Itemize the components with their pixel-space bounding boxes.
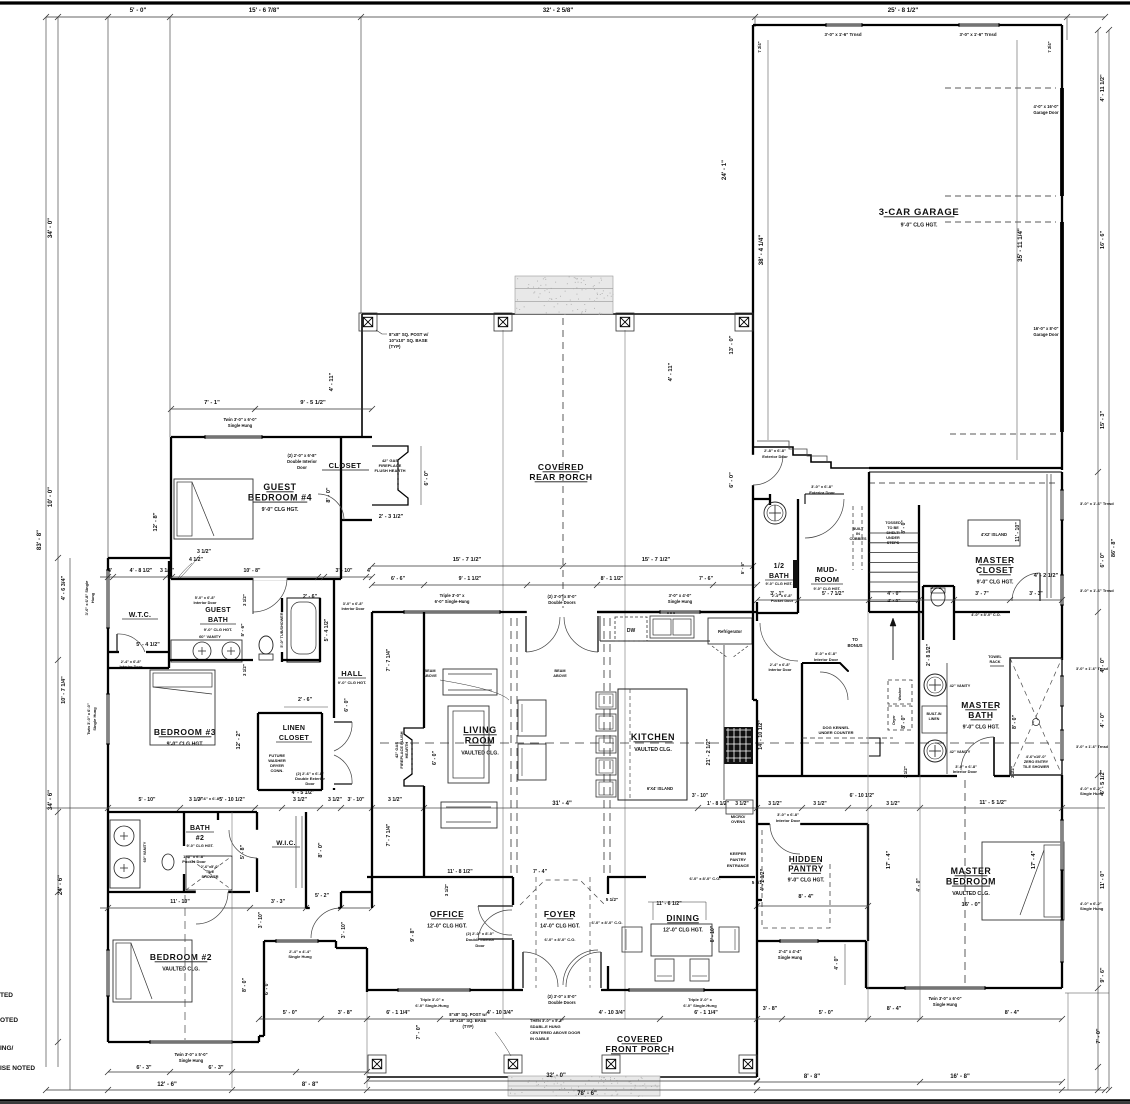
- svg-text:15' - 7 1/2": 15' - 7 1/2": [453, 557, 482, 563]
- svg-text:3' - 1": 3' - 1": [770, 591, 784, 597]
- svg-text:TED: TED: [0, 992, 13, 999]
- svg-text:Dryer: Dryer: [892, 715, 896, 725]
- svg-text:BATH: BATH: [190, 825, 210, 832]
- svg-text:83' - 8": 83' - 8": [36, 530, 43, 550]
- svg-text:KEEPER: KEEPER: [730, 851, 747, 856]
- svg-text:Single Hung: Single Hung: [1080, 906, 1104, 911]
- svg-text:4' - 11 1/2": 4' - 11 1/2": [1100, 74, 1106, 102]
- svg-text:11' - 8 1/2": 11' - 8 1/2": [447, 869, 473, 875]
- svg-text:Pocket Door: Pocket Door: [771, 599, 794, 603]
- svg-text:CUBBIES: CUBBIES: [849, 537, 867, 541]
- svg-text:8' - 0": 8' - 0": [901, 520, 907, 534]
- svg-text:2' - 3 1/2": 2' - 3 1/2": [379, 514, 404, 520]
- svg-text:6'-0" x 8'-0" C.O.: 6'-0" x 8'-0" C.O.: [689, 876, 720, 881]
- svg-text:14'-0" CLG HGT.: 14'-0" CLG HGT.: [540, 924, 580, 930]
- svg-text:(TYP): (TYP): [389, 344, 401, 349]
- svg-text:11' - 0": 11' - 0": [1100, 871, 1106, 889]
- svg-text:(2) 2'-0" x 6'-8": (2) 2'-0" x 6'-8": [287, 453, 316, 458]
- svg-text:8' - 8": 8' - 8": [302, 1082, 318, 1088]
- svg-text:2' - 8 1/2": 2' - 8 1/2": [926, 643, 932, 666]
- svg-text:MASTER: MASTER: [975, 555, 1015, 565]
- svg-text:KITCHEN: KITCHEN: [631, 732, 675, 742]
- svg-text:9'-0" CLG HGT.: 9'-0" CLG HGT.: [204, 627, 232, 632]
- svg-text:32' - 2 5/8": 32' - 2 5/8": [543, 7, 574, 14]
- svg-text:ROOM: ROOM: [465, 736, 495, 746]
- svg-text:3 1/2": 3 1/2": [903, 766, 908, 778]
- svg-text:Interior Door: Interior Door: [194, 601, 218, 605]
- svg-text:16' - 0": 16' - 0": [962, 902, 981, 908]
- svg-text:4' - 11": 4' - 11": [668, 362, 674, 381]
- svg-text:32' - 0": 32' - 0": [546, 1073, 566, 1079]
- svg-text:Triple 3'-0" x: Triple 3'-0" x: [440, 593, 466, 598]
- svg-text:PANTRY: PANTRY: [730, 857, 746, 862]
- svg-text:4' - 5 1/2": 4' - 5 1/2": [292, 790, 315, 796]
- svg-text:8' - 0": 8' - 0": [901, 715, 907, 729]
- svg-text:7' - 7 1/4": 7' - 7 1/4": [386, 823, 392, 846]
- svg-text:7' - 7 1/4": 7' - 7 1/4": [386, 648, 392, 671]
- svg-text:9'-0" CLG HGT.: 9'-0" CLG HGT.: [187, 844, 214, 848]
- svg-text:5' - 10": 5' - 10": [139, 797, 156, 803]
- svg-text:11' - 10": 11' - 10": [170, 899, 190, 905]
- svg-text:2'-6"x5'-0": 2'-6"x5'-0": [201, 865, 220, 869]
- svg-text:LINEN: LINEN: [929, 717, 940, 721]
- svg-text:14' - 10 1/2": 14' - 10 1/2": [758, 720, 764, 750]
- svg-text:Exterior Door: Exterior Door: [809, 490, 835, 495]
- svg-text:24' - 1": 24' - 1": [721, 160, 728, 180]
- svg-text:4'-0" x 16'-0": 4'-0" x 16'-0": [1033, 104, 1058, 109]
- svg-text:4'X2' ISLAND: 4'X2' ISLAND: [981, 532, 1007, 537]
- svg-text:1' - 8 1/2": 1' - 8 1/2": [707, 801, 730, 807]
- svg-text:6' - 0": 6' - 0": [1100, 552, 1106, 568]
- svg-text:IN GABLE: IN GABLE: [530, 1036, 549, 1041]
- svg-text:3 1/2": 3 1/2": [886, 801, 900, 807]
- svg-text:3'-0" x 1'-6" Trnsd: 3'-0" x 1'-6" Trnsd: [825, 32, 862, 37]
- svg-text:Single Hung: Single Hung: [778, 955, 803, 960]
- svg-text:VAULTED CLG.: VAULTED CLG.: [952, 891, 990, 897]
- svg-text:5'-0" TUB/SHOWER: 5'-0" TUB/SHOWER: [280, 612, 284, 647]
- svg-text:BEDROOM: BEDROOM: [946, 876, 996, 886]
- svg-text:3'-0" x 6'-8": 3'-0" x 6'-8": [815, 651, 837, 656]
- svg-text:5' - 4 1/2": 5' - 4 1/2": [324, 618, 330, 641]
- svg-text:7 3/4": 7 3/4": [1047, 41, 1052, 52]
- svg-text:10' - 7 1/4": 10' - 7 1/4": [61, 676, 67, 704]
- svg-text:GUEST: GUEST: [263, 482, 296, 492]
- svg-text:2'-4" x 6'-8": 2'-4" x 6'-8": [770, 663, 791, 667]
- svg-text:BATH: BATH: [769, 573, 789, 580]
- svg-text:9' - 1 1/2": 9' - 1 1/2": [459, 576, 482, 582]
- svg-text:TOWEL: TOWEL: [988, 655, 1002, 659]
- svg-text:8"x8" SQ. POST w/: 8"x8" SQ. POST w/: [449, 1012, 487, 1017]
- svg-text:9'-0" CLG HGT.: 9'-0" CLG HGT.: [338, 680, 366, 685]
- svg-text:5' - 7 1/2": 5' - 7 1/2": [822, 591, 845, 597]
- svg-text:78' - 6": 78' - 6": [577, 1091, 597, 1097]
- svg-text:10' - 8": 10' - 8": [244, 568, 261, 574]
- svg-text:7' - 0": 7' - 0": [1096, 1028, 1102, 1044]
- svg-text:8' - 0": 8' - 0": [1012, 714, 1018, 729]
- svg-text:9' - 8": 9' - 8": [410, 928, 416, 942]
- svg-text:3' - 8": 3' - 8": [763, 1006, 778, 1012]
- svg-text:60" VANITY: 60" VANITY: [143, 841, 147, 862]
- svg-text:IN: IN: [856, 532, 860, 536]
- svg-text:9'-0" CLG HGT.: 9'-0" CLG HGT.: [788, 878, 825, 884]
- svg-text:FLUSH HEARTH: FLUSH HEARTH: [374, 468, 405, 473]
- svg-text:12'-0" CLG HGT.: 12'-0" CLG HGT.: [427, 924, 467, 930]
- svg-text:(2) 3'-0" x 8'-0": (2) 3'-0" x 8'-0": [547, 594, 576, 599]
- svg-text:LINEN: LINEN: [283, 725, 306, 732]
- svg-text:8"x8" SQ. POST w/: 8"x8" SQ. POST w/: [389, 332, 429, 337]
- svg-text:6'-0" Single-Hung: 6'-0" Single-Hung: [683, 1003, 717, 1008]
- svg-text:17' - 4": 17' - 4": [886, 851, 892, 870]
- svg-text:OVENS: OVENS: [731, 819, 745, 824]
- svg-text:9'-0" CLG HGT.: 9'-0" CLG HGT.: [766, 582, 793, 586]
- svg-text:6' - 0": 6' - 0": [424, 470, 430, 486]
- svg-text:3'-0" x 1'-6" Trnsd: 3'-0" x 1'-6" Trnsd: [1076, 667, 1109, 671]
- svg-text:3'-0" x 6'-8": 3'-0" x 6'-8": [811, 484, 833, 489]
- svg-text:3' - 10": 3' - 10": [348, 797, 365, 803]
- svg-text:Garage Door: Garage Door: [1033, 332, 1059, 337]
- svg-text:6'-0" Single-Hung: 6'-0" Single-Hung: [415, 1003, 449, 1008]
- svg-text:Double Interior: Double Interior: [287, 459, 317, 464]
- svg-text:ISE NOTED: ISE NOTED: [0, 1065, 35, 1072]
- svg-text:SHELTI: SHELTI: [886, 531, 899, 535]
- svg-text:38' - 4 1/4": 38' - 4 1/4": [758, 235, 765, 266]
- svg-text:6' - 3": 6' - 3": [208, 1065, 224, 1071]
- svg-text:5' - 2": 5' - 2": [315, 893, 330, 899]
- svg-text:VAULTED CLG.: VAULTED CLG.: [634, 747, 672, 753]
- svg-text:3'-0" x 6'-8": 3'-0" x 6'-8": [777, 812, 799, 817]
- svg-text:3'-0" x 1'-6" Trnsd: 3'-0" x 1'-6" Trnsd: [1080, 501, 1114, 506]
- svg-text:9'-0" CLG HGT.: 9'-0" CLG HGT.: [262, 507, 299, 513]
- svg-text:VAULTED CLG.: VAULTED CLG.: [461, 751, 499, 757]
- svg-text:Washer: Washer: [898, 687, 902, 700]
- svg-text:SDABL-E HUNG: SDABL-E HUNG: [530, 1024, 561, 1029]
- svg-text:Hung: Hung: [90, 592, 95, 603]
- svg-text:3 1/2": 3 1/2": [735, 801, 749, 807]
- svg-text:BEAM: BEAM: [554, 669, 565, 673]
- svg-text:2' - 6": 2' - 6": [298, 697, 313, 703]
- svg-text:42" VANITY: 42" VANITY: [950, 684, 971, 688]
- svg-text:LIVING: LIVING: [463, 725, 497, 735]
- svg-text:9'-0" CLG HGT.: 9'-0" CLG HGT.: [167, 742, 204, 748]
- svg-text:12'-0" CLG HGT.: 12'-0" CLG HGT.: [663, 928, 703, 934]
- svg-text:5' - 0": 5' - 0": [283, 1010, 298, 1016]
- svg-text:6'X4' ISLAND: 6'X4' ISLAND: [647, 786, 673, 791]
- svg-text:9' - 6": 9' - 6": [1100, 967, 1106, 983]
- svg-text:5' - 10 1/2": 5' - 10 1/2": [219, 797, 245, 803]
- svg-text:4' - 0": 4' - 0": [1100, 712, 1106, 728]
- svg-text:3 1/2": 3 1/2": [197, 549, 212, 555]
- svg-text:8' - 0": 8' - 0": [326, 487, 332, 503]
- svg-text:Refrigerator: Refrigerator: [718, 629, 742, 634]
- svg-text:7 3/4": 7 3/4": [757, 41, 762, 52]
- svg-text:5' - 4 1/2": 5' - 4 1/2": [136, 642, 160, 648]
- svg-text:5' - 0": 5' - 0": [819, 1010, 834, 1016]
- svg-text:11' - 5 1/2": 11' - 5 1/2": [979, 800, 1007, 806]
- svg-text:3'-0" x 6'-8": 3'-0" x 6'-8": [343, 602, 364, 606]
- svg-text:Twin 3'-0" x 6'-0": Twin 3'-0" x 6'-0": [223, 417, 256, 422]
- svg-text:ZERO ENTRY: ZERO ENTRY: [1024, 760, 1049, 764]
- svg-text:9'-0" CLG HGT.: 9'-0" CLG HGT.: [963, 725, 1000, 731]
- svg-text:Single Hung: Single Hung: [933, 1002, 958, 1007]
- svg-text:16'-0" x 8'-0": 16'-0" x 8'-0": [1033, 326, 1058, 331]
- svg-text:12' - 2": 12' - 2": [236, 730, 242, 749]
- svg-text:OFFICE: OFFICE: [430, 909, 465, 919]
- svg-text:Twin 3'-0" x 6'-0": Twin 3'-0" x 6'-0": [928, 996, 961, 1001]
- svg-text:4' - 2 1/2": 4' - 2 1/2": [1034, 573, 1059, 579]
- svg-text:REAR PORCH: REAR PORCH: [529, 472, 592, 482]
- svg-text:8' - 4": 8' - 4": [798, 894, 814, 900]
- svg-text:COVERED: COVERED: [617, 1034, 663, 1044]
- svg-text:1'-6" x 6'-8": 1'-6" x 6'-8": [199, 796, 221, 801]
- svg-text:3 1/2": 3 1/2": [444, 884, 449, 896]
- svg-text:6'-0" x 8'-0" C.O.: 6'-0" x 8'-0" C.O.: [544, 937, 575, 942]
- svg-text:8' - 4": 8' - 4": [887, 1006, 902, 1012]
- svg-text:SHOWER: SHOWER: [201, 875, 218, 879]
- svg-text:W.T.C.: W.T.C.: [129, 612, 151, 619]
- svg-text:HIDDEN: HIDDEN: [789, 855, 823, 864]
- svg-text:BEDROOM #2: BEDROOM #2: [150, 952, 212, 962]
- svg-text:BATH: BATH: [208, 617, 228, 624]
- svg-text:COVERED: COVERED: [538, 462, 584, 472]
- svg-text:#2: #2: [196, 835, 204, 842]
- svg-text:16' - 8": 16' - 8": [950, 1074, 970, 1080]
- svg-text:2'-4" x 4'-4": 2'-4" x 4'-4": [779, 949, 802, 954]
- svg-text:3' - 3": 3' - 3": [271, 899, 286, 905]
- svg-text:HEARTH: HEARTH: [404, 742, 409, 759]
- svg-text:BATH: BATH: [968, 710, 993, 720]
- svg-text:3' - 3": 3' - 3": [1029, 591, 1043, 597]
- svg-text:ROOM: ROOM: [815, 575, 840, 584]
- svg-text:3' - 10": 3' - 10": [341, 921, 347, 938]
- svg-text:3'-0" x 1'-6" Trnsd: 3'-0" x 1'-6" Trnsd: [960, 32, 997, 37]
- svg-text:16' - 6": 16' - 6": [1100, 231, 1106, 250]
- svg-text:CONN.: CONN.: [271, 768, 284, 773]
- svg-text:GUEST: GUEST: [205, 607, 231, 614]
- svg-text:OTED: OTED: [0, 1017, 18, 1024]
- svg-text:Double Doors: Double Doors: [548, 1000, 576, 1005]
- svg-text:60" VANITY: 60" VANITY: [199, 634, 221, 639]
- svg-text:4' - 11": 4' - 11": [329, 372, 335, 391]
- svg-text:86' - 8": 86' - 8": [1111, 539, 1117, 558]
- svg-text:o o o: o o o: [667, 611, 675, 615]
- svg-text:Single Hung: Single Hung: [668, 599, 693, 604]
- svg-text:4' - 0": 4' - 0": [887, 598, 900, 604]
- svg-text:8' - 1 1/2": 8' - 1 1/2": [601, 576, 624, 582]
- svg-text:6' - 1 1/4": 6' - 1 1/4": [694, 1010, 718, 1016]
- svg-text:9'-0" CLG HGT.: 9'-0" CLG HGT.: [901, 223, 938, 229]
- svg-text:31' - 4": 31' - 4": [552, 801, 572, 807]
- svg-text:Door: Door: [305, 781, 315, 786]
- svg-text:BEAM: BEAM: [424, 669, 435, 673]
- svg-text:2'-8" x 6'-8": 2'-8" x 6'-8": [764, 448, 786, 453]
- svg-text:TO BE: TO BE: [887, 526, 899, 530]
- svg-text:Triple 3'-0" x: Triple 3'-0" x: [420, 997, 445, 1002]
- svg-text:Interior Door: Interior Door: [776, 818, 801, 823]
- svg-text:4': 4': [108, 568, 112, 574]
- svg-text:6' - 6": 6' - 6": [391, 576, 406, 582]
- svg-text:ING/: ING/: [0, 1045, 14, 1052]
- svg-text:Single Hung: Single Hung: [228, 423, 253, 428]
- svg-text:5' - 8": 5' - 8": [240, 844, 246, 859]
- svg-text:3 1/2": 3 1/2": [328, 797, 343, 803]
- svg-text:Door: Door: [297, 465, 307, 470]
- svg-text:ENTRANCE: ENTRANCE: [727, 863, 750, 868]
- svg-text:4' - 10 3/4": 4' - 10 3/4": [599, 1010, 626, 1016]
- svg-text:UNDER: UNDER: [886, 536, 900, 540]
- svg-text:3 1/2": 3 1/2": [813, 801, 827, 807]
- svg-text:3 1/2": 3 1/2": [293, 797, 308, 803]
- svg-text:(TYP): (TYP): [463, 1024, 475, 1029]
- svg-text:CLOSET: CLOSET: [976, 565, 1014, 575]
- svg-text:9' - 5 1/2": 9' - 5 1/2": [300, 400, 326, 406]
- svg-text:6' - 10 1/2": 6' - 10 1/2": [850, 793, 875, 799]
- svg-text:4' - 0": 4' - 0": [916, 878, 922, 892]
- svg-text:5'-0" x 6'-8": 5'-0" x 6'-8": [195, 596, 216, 600]
- svg-text:7' - 4": 7' - 4": [533, 869, 548, 875]
- svg-text:3 1/2": 3 1/2": [1010, 766, 1015, 778]
- svg-text:CENTERED ABOVE DOOR: CENTERED ABOVE DOOR: [530, 1030, 580, 1035]
- svg-text:6' - 0": 6' - 0": [432, 750, 438, 765]
- svg-text:15' - 6 7/8": 15' - 6 7/8": [249, 7, 280, 14]
- svg-text:Exterior Door: Exterior Door: [762, 454, 788, 459]
- svg-text:6' - 3": 6' - 3": [136, 1065, 152, 1071]
- svg-text:12' - 6": 12' - 6": [157, 1082, 177, 1088]
- svg-text:35' - 11 1/4": 35' - 11 1/4": [1017, 228, 1024, 262]
- svg-text:DINING: DINING: [666, 913, 699, 923]
- svg-text:MASTER: MASTER: [951, 866, 992, 876]
- svg-text:15' - 3": 15' - 3": [1100, 411, 1106, 430]
- svg-text:8' - 4": 8' - 4": [1005, 1010, 1020, 1016]
- svg-text:25' - 8 1/2": 25' - 8 1/2": [888, 7, 919, 14]
- svg-text:3 1/2": 3 1/2": [242, 594, 247, 606]
- svg-text:(2) 3'-0" x 8'-0": (2) 3'-0" x 8'-0": [547, 994, 576, 999]
- svg-text:21' - 2 1/2": 21' - 2 1/2": [706, 738, 712, 765]
- svg-text:5 1/2": 5 1/2": [606, 897, 618, 902]
- svg-text:Double Doors: Double Doors: [548, 600, 576, 605]
- svg-text:3' - 7": 3' - 7": [975, 591, 989, 597]
- svg-text:4' - 10 3/4": 4' - 10 3/4": [487, 1010, 514, 1016]
- svg-text:7' - 0": 7' - 0": [416, 1024, 422, 1039]
- svg-text:CLOSET: CLOSET: [279, 735, 310, 742]
- svg-text:TILE: TILE: [206, 870, 215, 874]
- svg-text:7' - 1": 7' - 1": [204, 400, 220, 406]
- svg-text:6' - 0": 6' - 0": [344, 698, 350, 712]
- svg-text:9'-0" CLG HGT.: 9'-0" CLG HGT.: [977, 580, 1014, 586]
- svg-text:ABOVE: ABOVE: [423, 674, 437, 678]
- svg-text:3'-0" x 4'-0": 3'-0" x 4'-0": [669, 593, 692, 598]
- svg-text:BEDROOM #4: BEDROOM #4: [248, 492, 312, 502]
- svg-text:Interior Door: Interior Door: [953, 769, 978, 774]
- svg-text:Single Hung: Single Hung: [288, 954, 312, 959]
- svg-text:TILE SHOWER: TILE SHOWER: [1023, 765, 1050, 769]
- svg-text:4'-0" x 8'-0" C.O.: 4'-0" x 8'-0" C.O.: [971, 613, 1000, 617]
- svg-text:Garage Door: Garage Door: [1033, 110, 1059, 115]
- svg-text:(2) 2'-0" x 8'-0": (2) 2'-0" x 8'-0": [466, 931, 494, 936]
- svg-text:RACK: RACK: [990, 660, 1001, 664]
- svg-text:3' - 10": 3' - 10": [692, 793, 709, 799]
- svg-text:VAULTED CLG.: VAULTED CLG.: [162, 967, 200, 973]
- svg-text:2'-4" x 6'-8": 2'-4" x 6'-8": [121, 660, 142, 664]
- svg-text:CLOSET: CLOSET: [329, 461, 362, 470]
- svg-text:3 1/2": 3 1/2": [242, 664, 247, 676]
- svg-text:6' - 0": 6' - 0": [729, 472, 735, 488]
- svg-text:5' - 0": 5' - 0": [130, 7, 147, 14]
- svg-text:5' - 5": 5' - 5": [740, 562, 745, 574]
- svg-text:17' - 4": 17' - 4": [1031, 851, 1037, 870]
- svg-text:8' - 10": 8' - 10": [710, 925, 716, 942]
- svg-text:Twin 3'-0" x 5'-0": Twin 3'-0" x 5'-0": [174, 1052, 207, 1057]
- svg-text:4' - 0": 4' - 0": [887, 591, 901, 597]
- svg-text:FRONT PORCH: FRONT PORCH: [606, 1044, 675, 1054]
- svg-text:1/2: 1/2: [774, 563, 785, 570]
- svg-text:BUILT-IN: BUILT-IN: [927, 712, 942, 716]
- svg-text:Double Interior: Double Interior: [466, 937, 495, 942]
- svg-text:2' - 6": 2' - 6": [303, 594, 318, 600]
- svg-text:Twin 3'-0" x 6'-0": Twin 3'-0" x 6'-0": [86, 703, 91, 735]
- svg-text:BONUS: BONUS: [847, 643, 862, 648]
- svg-text:3' - 10": 3' - 10": [258, 911, 264, 928]
- svg-text:Interior Door: Interior Door: [769, 668, 793, 672]
- svg-text:7' - 6": 7' - 6": [699, 576, 714, 582]
- svg-text:11' - 10": 11' - 10": [1015, 522, 1021, 542]
- svg-text:6' - 1 1/4": 6' - 1 1/4": [386, 1010, 410, 1016]
- svg-text:Single Hung: Single Hung: [92, 707, 97, 731]
- svg-text:3'-0" x 6'-8" Single: 3'-0" x 6'-8" Single: [84, 580, 89, 616]
- svg-text:Single Hung: Single Hung: [179, 1058, 204, 1063]
- svg-text:6'-0" Single-Hung: 6'-0" Single-Hung: [435, 599, 470, 604]
- svg-text:3 1/2": 3 1/2": [768, 801, 782, 807]
- svg-text:3 1/2": 3 1/2": [388, 797, 403, 803]
- svg-text:3'-0" x 1'-6" Trnsd: 3'-0" x 1'-6" Trnsd: [1080, 588, 1114, 593]
- svg-text:DW: DW: [627, 628, 636, 634]
- svg-text:3'-0" x 1'-6" Trnsd: 3'-0" x 1'-6" Trnsd: [1076, 745, 1109, 749]
- svg-text:8' - 8": 8' - 8": [804, 1074, 820, 1080]
- svg-text:Door: Door: [475, 943, 485, 948]
- svg-text:3 1/2": 3 1/2": [160, 568, 175, 574]
- svg-text:15' - 7 1/2": 15' - 7 1/2": [642, 557, 671, 563]
- svg-text:MUD-: MUD-: [817, 565, 838, 574]
- svg-text:BEDROOM #3: BEDROOM #3: [154, 727, 216, 737]
- svg-text:3' - 1": 3' - 1": [930, 585, 944, 591]
- svg-text:ABOVE: ABOVE: [553, 674, 567, 678]
- svg-text:UNDER COUNTER: UNDER COUNTER: [818, 730, 853, 735]
- svg-text:10"x10" SQ. BASE: 10"x10" SQ. BASE: [389, 338, 428, 343]
- svg-text:HALL: HALL: [341, 669, 363, 678]
- svg-text:4'-6"x10'-0": 4'-6"x10'-0": [1026, 755, 1047, 759]
- svg-text:3' - 8": 3' - 8": [338, 1010, 353, 1016]
- svg-text:4' - 8 1/2": 4' - 8 1/2": [130, 568, 153, 574]
- svg-text:8' - 0": 8' - 0": [318, 842, 324, 858]
- svg-text:Interior Door: Interior Door: [814, 657, 839, 662]
- svg-text:STEPS: STEPS: [887, 541, 900, 545]
- svg-text:34' - 6": 34' - 6": [47, 790, 54, 810]
- svg-text:Single Hung: Single Hung: [1080, 791, 1104, 796]
- svg-text:TO: TO: [852, 637, 858, 642]
- svg-text:Triple 3'-0" x: Triple 3'-0" x: [688, 997, 713, 1002]
- svg-text:Pocket Door: Pocket Door: [182, 859, 206, 864]
- svg-text:W.I.C.: W.I.C.: [276, 840, 296, 847]
- svg-text:BUILT: BUILT: [853, 527, 865, 531]
- svg-text:5' - 6": 5' - 6": [240, 623, 246, 636]
- svg-text:6' - 0": 6' - 0": [264, 980, 270, 995]
- svg-text:4' - 6 3/4": 4' - 6 3/4": [61, 575, 67, 600]
- svg-text:12' - 8": 12' - 8": [153, 512, 159, 531]
- svg-text:4' - 0": 4' - 0": [834, 956, 840, 970]
- svg-text:MASTER: MASTER: [961, 700, 1001, 710]
- svg-text:FOYER: FOYER: [544, 909, 576, 919]
- svg-text:PANTRY: PANTRY: [788, 865, 824, 874]
- svg-text:34' - 0": 34' - 0": [47, 218, 54, 238]
